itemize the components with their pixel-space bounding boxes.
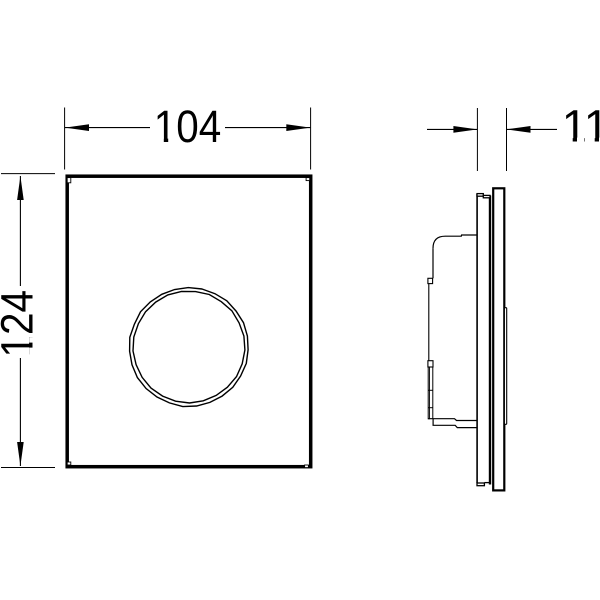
svg-text:11: 11	[562, 101, 600, 152]
svg-text:124: 124	[0, 290, 43, 358]
svg-text:104: 104	[154, 101, 222, 152]
